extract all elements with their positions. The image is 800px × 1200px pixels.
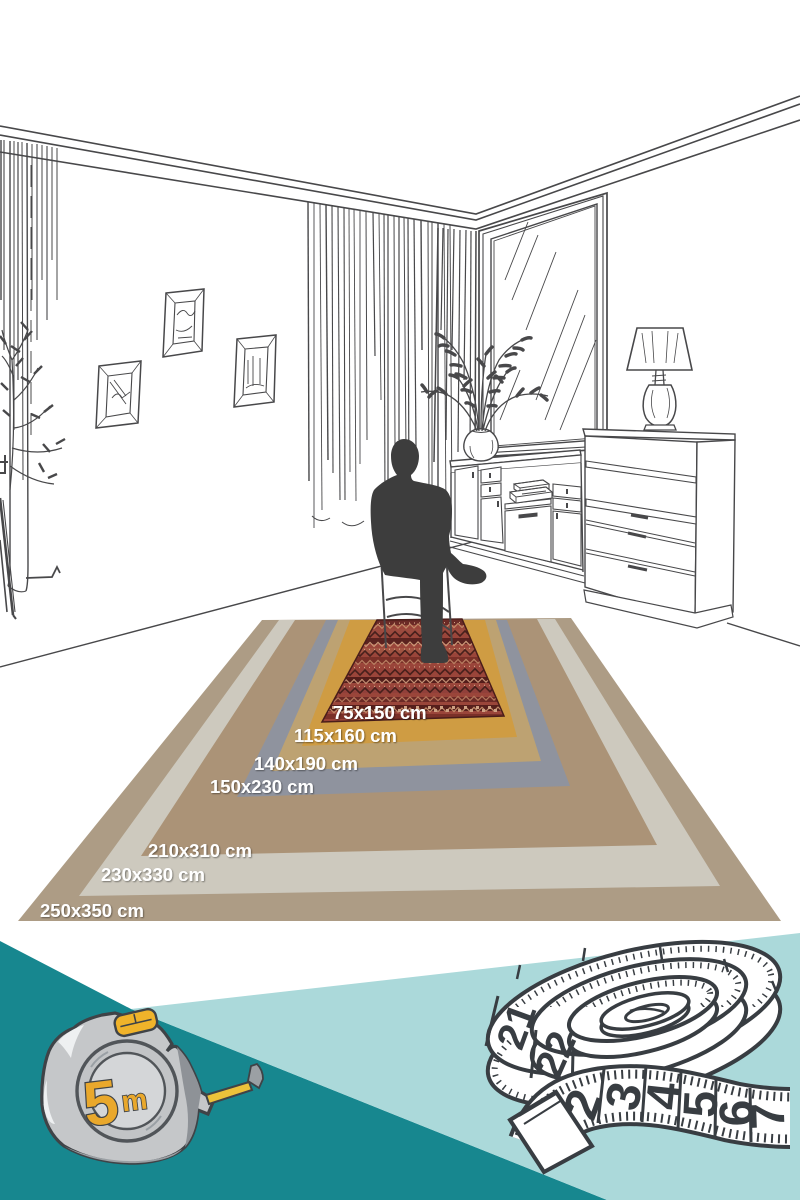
svg-text:7: 7	[742, 1102, 796, 1131]
svg-text:75x150 cm: 75x150 cm	[333, 702, 427, 723]
svg-text:250x350 cm: 250x350 cm	[40, 900, 144, 921]
svg-text:m: m	[120, 1084, 150, 1119]
svg-text:230x330 cm: 230x330 cm	[101, 864, 205, 885]
svg-text:140x190 cm: 140x190 cm	[254, 753, 358, 774]
svg-text:210x310 cm: 210x310 cm	[148, 840, 252, 861]
svg-text:150x230 cm: 150x230 cm	[210, 776, 314, 797]
svg-text:115x160 cm: 115x160 cm	[294, 725, 397, 746]
